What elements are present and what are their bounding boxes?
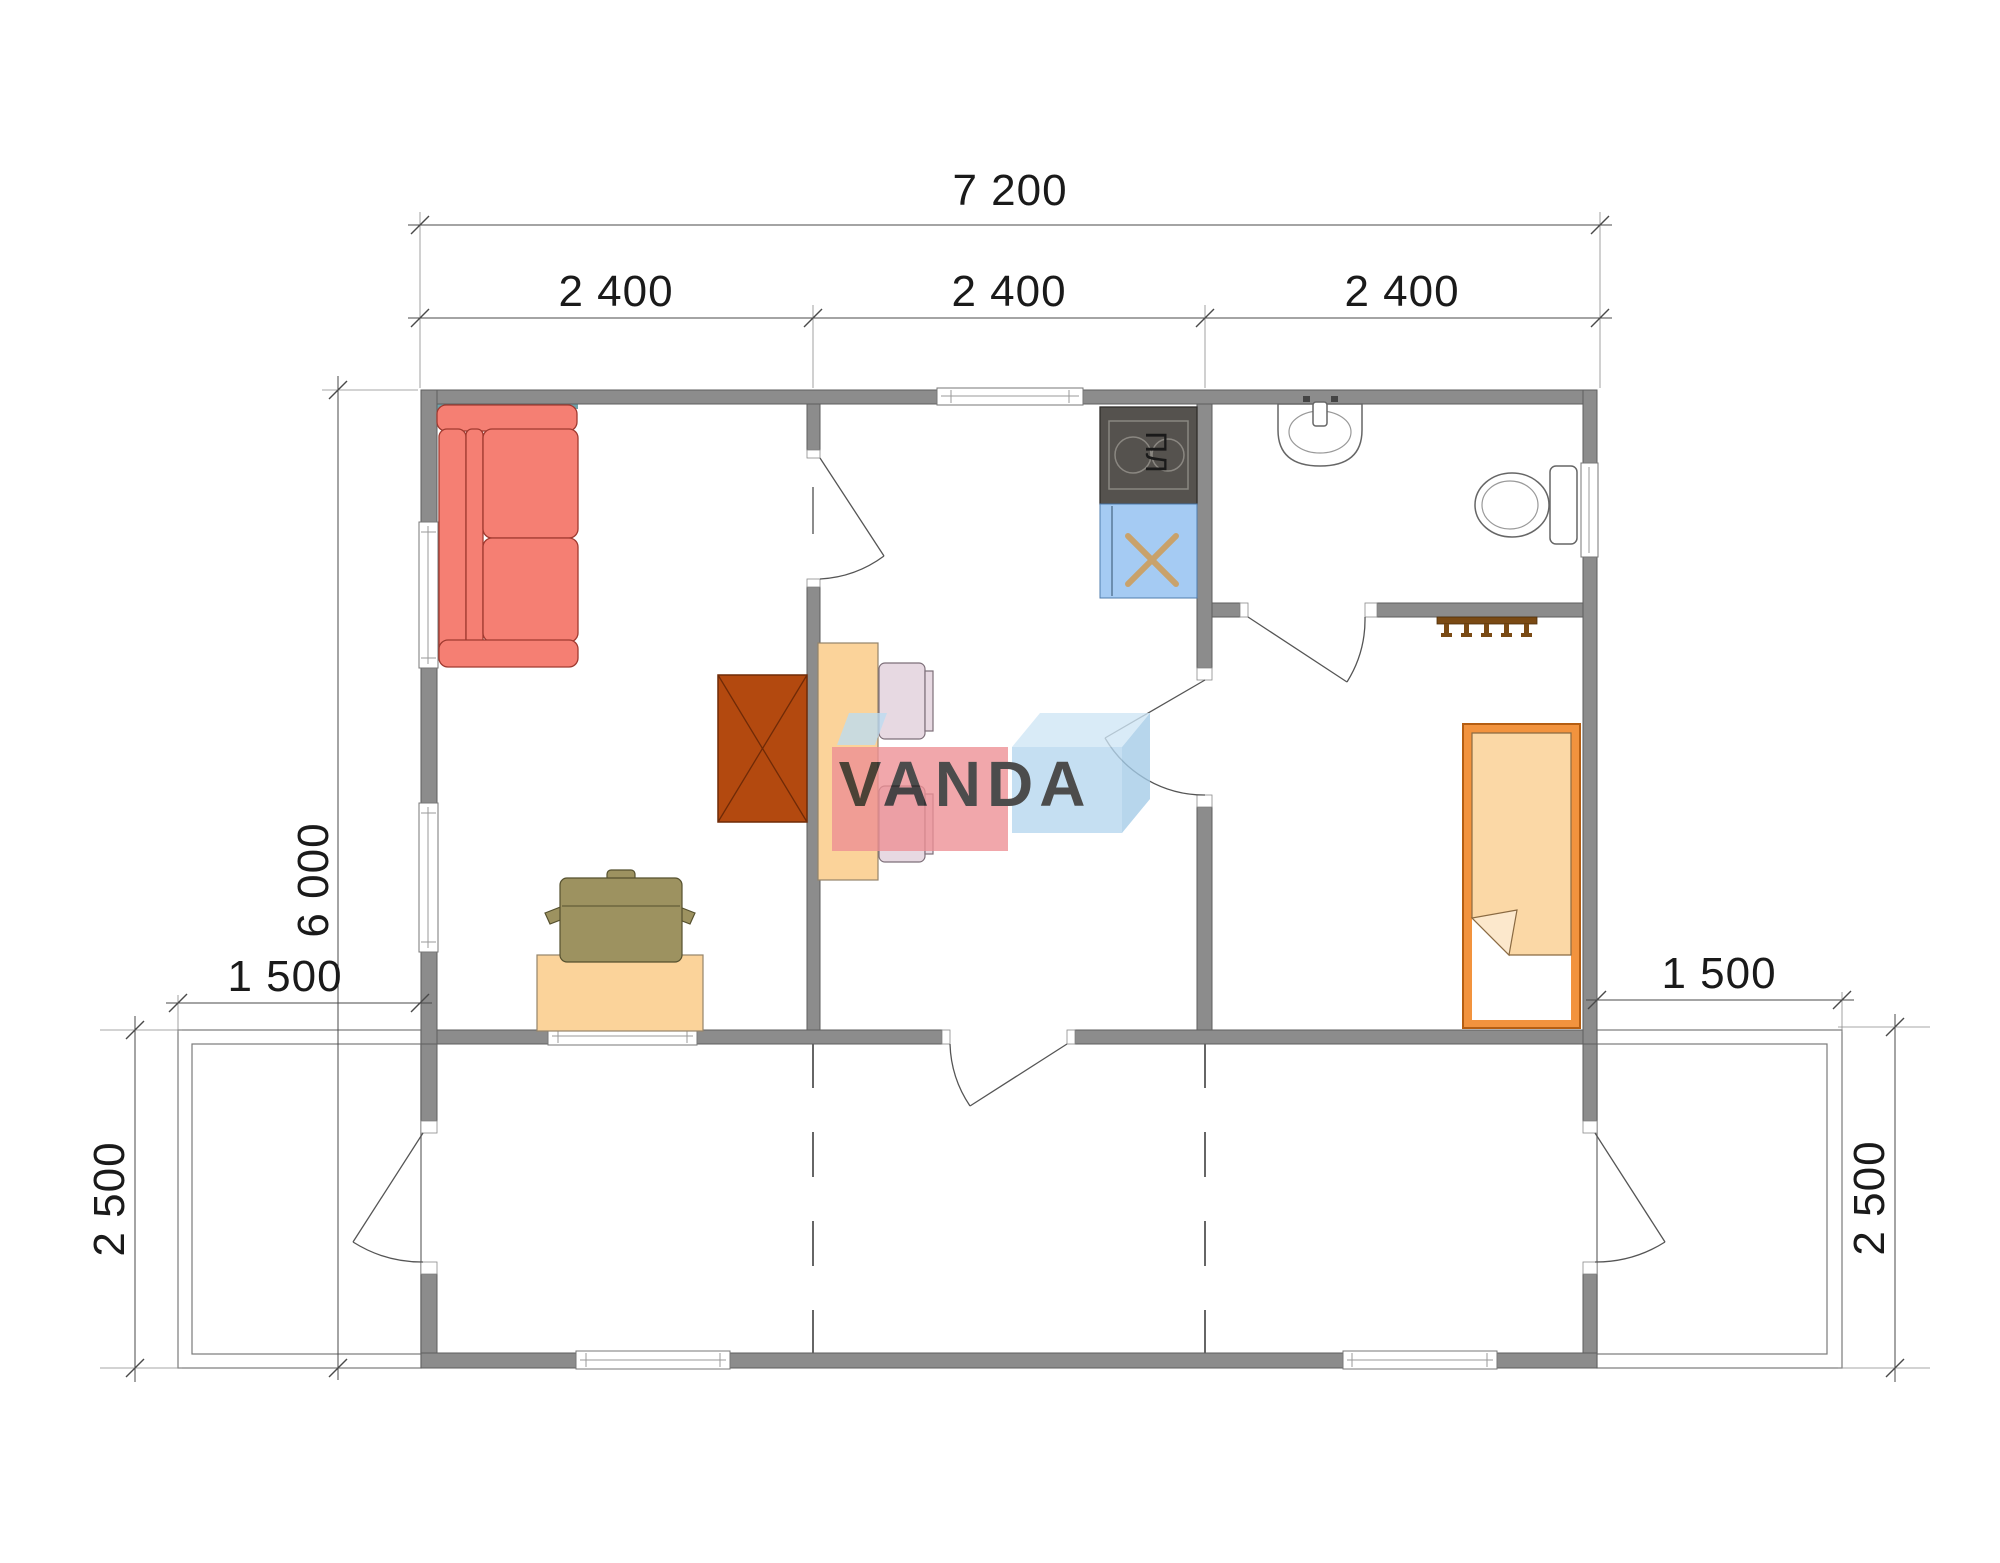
wall-veranda-right-1 — [1583, 1044, 1597, 1121]
porch-right — [1597, 1030, 1842, 1368]
sink-tap — [1313, 402, 1327, 426]
wall-top-right — [1083, 390, 1597, 404]
dim-text-module-3: 2 400 — [1344, 267, 1459, 316]
dim-terrace-side-right: 1 500 — [1586, 949, 1854, 1032]
dim-text-module-2: 2 400 — [951, 267, 1066, 316]
dim-text-overall-depth: 6 000 — [289, 822, 338, 937]
dim-terrace-side-left: 1 500 — [166, 952, 432, 1032]
jamb — [1067, 1030, 1075, 1044]
jamb — [807, 450, 820, 458]
porch-right-outer-rail — [1597, 1030, 1842, 1368]
bathroom-sink — [1278, 396, 1362, 466]
wall-top-left — [421, 390, 937, 404]
sink-tap-dot — [1331, 396, 1338, 402]
bed — [1463, 724, 1580, 1028]
sofa — [437, 405, 578, 667]
kitchen-sink — [1100, 504, 1197, 598]
window-bathroom-right — [1581, 463, 1598, 557]
dining-chair-1 — [879, 663, 933, 739]
desk — [537, 955, 703, 1031]
wall-bedroom-top — [1197, 404, 1212, 668]
jamb — [1240, 603, 1248, 617]
wall-bedroom-bottom — [1197, 807, 1212, 1030]
jamb — [942, 1030, 950, 1044]
desk-area — [537, 870, 703, 1031]
jamb — [1583, 1262, 1597, 1274]
wall-bottom-2 — [697, 1030, 942, 1044]
porch-left-inner-rail — [192, 1044, 421, 1354]
coat-rack-hooks — [1441, 624, 1532, 637]
wall-veranda-bottom-2 — [730, 1353, 1343, 1368]
dim-text-terrace-side-left: 1 500 — [227, 952, 342, 1001]
wall-left-2 — [421, 668, 437, 803]
office-chair-seat — [560, 878, 682, 962]
wall-right-1 — [1583, 390, 1597, 463]
wall-veranda-right-2 — [1583, 1274, 1597, 1360]
porch-left — [178, 1030, 421, 1368]
sofa-bottom-arm — [439, 640, 578, 667]
coat-rack — [1437, 617, 1537, 637]
toilet-tank — [1550, 466, 1577, 544]
door-bathroom — [1248, 617, 1365, 682]
window-living-left-upper — [419, 522, 438, 668]
wall-bottom-3 — [1075, 1030, 1597, 1044]
sink-tap-dot — [1303, 396, 1310, 402]
logo-wordmark: VANDA — [839, 748, 1092, 820]
dim-text-module-1: 2 400 — [558, 267, 673, 316]
sofa-seat-1 — [483, 429, 578, 538]
dim-text-terrace-side-right: 1 500 — [1661, 949, 1776, 998]
wall-left-1 — [421, 390, 437, 522]
wall-left-3 — [421, 952, 437, 1044]
jamb — [1365, 603, 1377, 617]
wall-veranda-left-2 — [421, 1274, 437, 1360]
sofa-seat-2 — [483, 538, 578, 642]
stove-label: ПЛ — [1139, 431, 1172, 472]
sofa-left-cushion — [466, 429, 483, 666]
wall-right-2 — [1583, 557, 1597, 1044]
window-kitchen-top — [937, 388, 1083, 405]
wall-bottom-1 — [421, 1030, 548, 1044]
jamb — [421, 1121, 437, 1133]
wall-veranda-bottom-3 — [1497, 1353, 1597, 1368]
window-veranda-left — [576, 1351, 730, 1369]
coffee-table — [718, 675, 807, 822]
module-boundaries — [813, 487, 1205, 1353]
sofa-left-arm — [439, 429, 466, 666]
coat-rack-bar — [1437, 617, 1537, 624]
jamb — [807, 579, 820, 587]
dim-module-widths: 2 400 2 400 2 400 — [408, 267, 1612, 388]
floor-plan-page: ПЛ — [0, 0, 2000, 1563]
jamb — [1583, 1121, 1597, 1133]
wall-living-dining-top — [807, 404, 820, 450]
wall-bathroom-right — [1377, 603, 1583, 617]
wall-veranda-bottom-1 — [421, 1353, 576, 1368]
dim-overall-depth: 6 000 — [289, 376, 418, 1380]
bathroom — [1278, 396, 1577, 544]
kitchen-block: ПЛ — [1100, 407, 1197, 598]
door-jambs — [421, 450, 1597, 1274]
stove: ПЛ — [1100, 407, 1197, 504]
dim-text-terrace-depth-left: 2 500 — [85, 1141, 134, 1256]
jamb — [421, 1262, 437, 1274]
door-living-dining — [820, 458, 884, 579]
door-porch-left — [353, 1133, 423, 1262]
toilet — [1475, 466, 1577, 544]
window-veranda-right — [1343, 1351, 1497, 1369]
dim-text-overall-width: 7 200 — [952, 166, 1067, 215]
wall-bathroom-left — [1212, 603, 1240, 617]
dim-text-terrace-depth-right: 2 500 — [1845, 1140, 1894, 1255]
office-chair — [545, 870, 695, 962]
door-veranda-entry — [950, 1044, 1067, 1106]
window-living-left-lower — [419, 803, 438, 952]
dim-terrace-depth-right: 2 500 — [1838, 1014, 1930, 1382]
sofa-backrest — [437, 405, 577, 431]
jamb — [1197, 795, 1212, 807]
porch-left-outer-rail — [178, 1030, 421, 1368]
door-porch-right — [1595, 1133, 1665, 1262]
dim-terrace-depth-left: 2 500 — [85, 1016, 182, 1382]
porch-right-inner-rail — [1597, 1044, 1827, 1354]
jamb — [1197, 668, 1212, 680]
floor-plan-drawing: ПЛ — [0, 0, 2000, 1563]
wall-veranda-left-1 — [421, 1044, 437, 1121]
